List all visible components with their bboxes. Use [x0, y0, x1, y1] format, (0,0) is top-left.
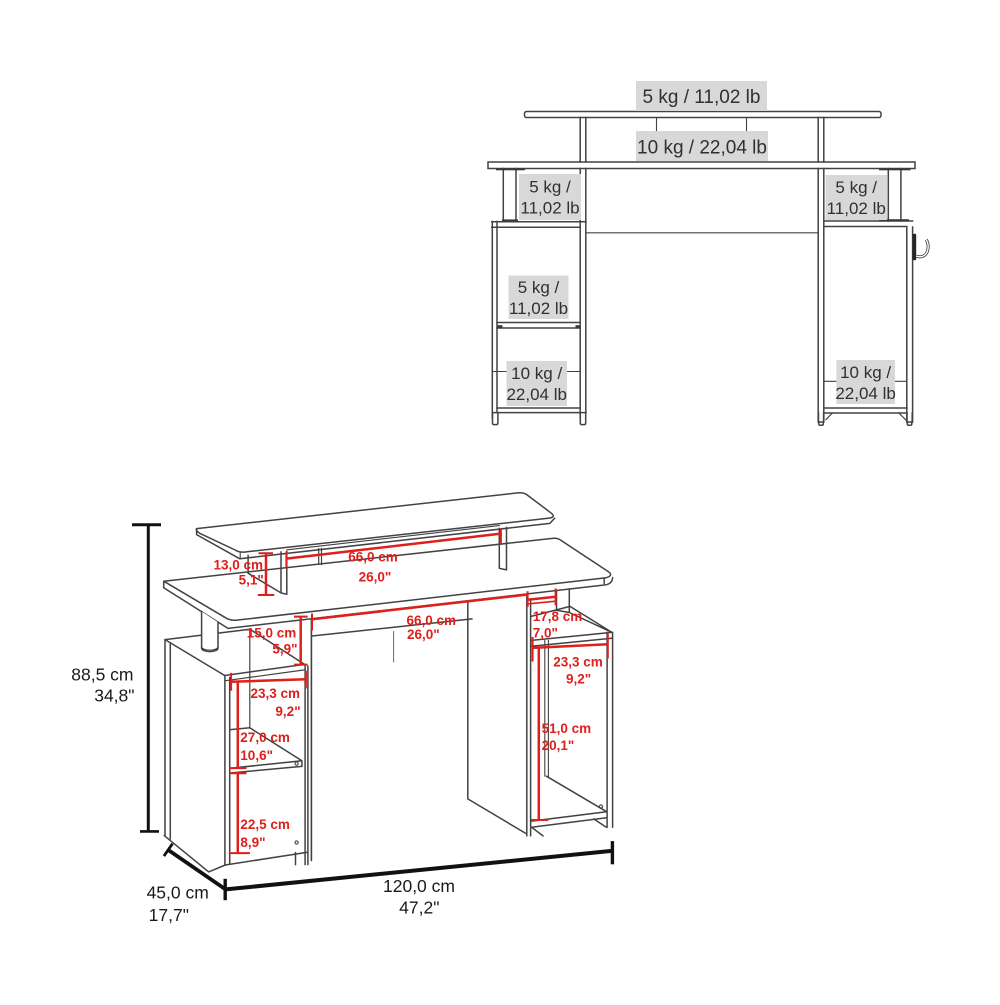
- svg-text:10,6": 10,6": [240, 748, 273, 763]
- svg-text:9,2": 9,2": [566, 672, 591, 687]
- svg-text:26,0": 26,0": [359, 570, 392, 585]
- svg-text:51,0 cm: 51,0 cm: [542, 721, 592, 736]
- svg-text:5 kg / 11,02 lb: 5 kg / 11,02 lb: [643, 87, 761, 108]
- svg-text:10 kg /: 10 kg /: [511, 364, 562, 383]
- svg-text:5 kg /: 5 kg /: [518, 278, 560, 297]
- svg-text:23,3 cm: 23,3 cm: [553, 655, 603, 670]
- svg-text:9,2": 9,2": [275, 704, 300, 719]
- svg-text:20,1": 20,1": [542, 738, 575, 753]
- svg-text:22,5 cm: 22,5 cm: [240, 817, 290, 832]
- svg-text:120,0 cm: 120,0 cm: [383, 876, 455, 896]
- svg-text:8,9": 8,9": [240, 835, 265, 850]
- svg-text:22,04 lb: 22,04 lb: [506, 385, 567, 404]
- svg-text:23,3 cm: 23,3 cm: [250, 686, 300, 701]
- svg-text:5,9": 5,9": [272, 642, 297, 657]
- svg-text:88,5 cm: 88,5 cm: [71, 665, 133, 685]
- svg-text:13,0 cm: 13,0 cm: [213, 558, 263, 573]
- svg-text:26,0": 26,0": [407, 627, 440, 642]
- svg-text:10 kg /: 10 kg /: [840, 363, 891, 382]
- svg-text:66,0 cm: 66,0 cm: [348, 550, 398, 565]
- svg-text:15,0 cm: 15,0 cm: [247, 626, 297, 641]
- svg-text:5,1": 5,1": [239, 573, 264, 588]
- svg-text:45,0 cm: 45,0 cm: [147, 883, 209, 903]
- svg-text:5 kg /: 5 kg /: [835, 178, 877, 197]
- svg-text:11,02 lb: 11,02 lb: [509, 299, 568, 318]
- svg-text:66,0 cm: 66,0 cm: [407, 613, 457, 628]
- svg-text:17,8 cm: 17,8 cm: [533, 609, 583, 624]
- svg-text:27,0 cm: 27,0 cm: [240, 730, 290, 745]
- svg-text:47,2": 47,2": [399, 897, 439, 917]
- svg-text:7,0": 7,0": [533, 626, 558, 641]
- svg-text:34,8": 34,8": [94, 686, 134, 706]
- svg-text:10 kg / 22,04 lb: 10 kg / 22,04 lb: [637, 138, 767, 159]
- svg-text:22,04 lb: 22,04 lb: [835, 384, 896, 403]
- svg-text:11,02 lb: 11,02 lb: [827, 199, 886, 218]
- svg-text:5 kg /: 5 kg /: [529, 178, 571, 197]
- svg-text:11,02 lb: 11,02 lb: [520, 199, 579, 218]
- svg-text:17,7": 17,7": [149, 905, 189, 925]
